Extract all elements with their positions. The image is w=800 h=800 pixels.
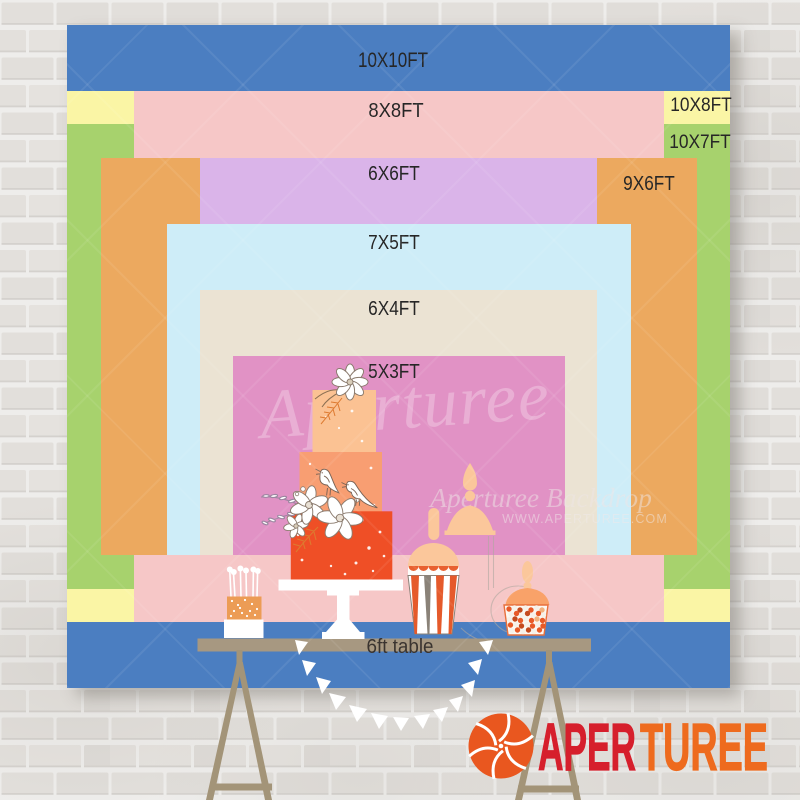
svg-text:TUREE: TUREE [640,710,768,785]
svg-text:APER: APER [538,710,636,785]
svg-text:6ft table: 6ft table [367,636,434,658]
